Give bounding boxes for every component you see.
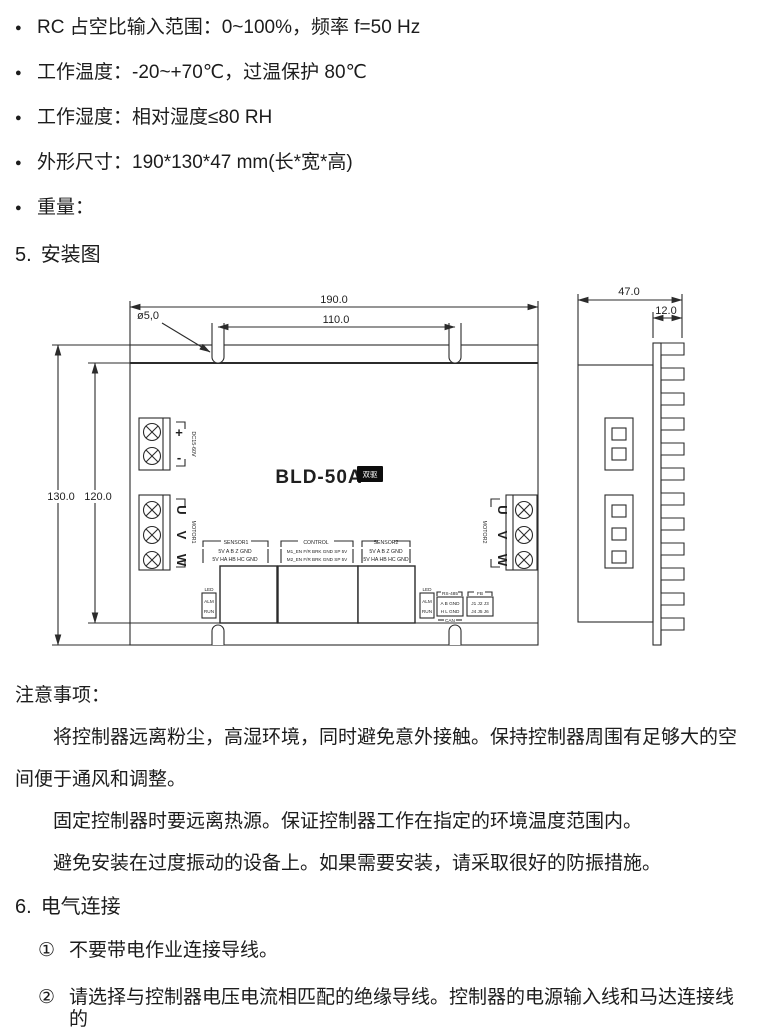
- fb-row1: J1 J2 J3: [471, 601, 489, 606]
- model-label: BLD-50A: [275, 467, 362, 488]
- motor1-u: U: [174, 505, 189, 514]
- front-view: 190.0 110.0 ø5,0 130.0 120.0: [42, 294, 538, 645]
- spec-text: 工作温度：-20~+70℃，过温保护 80℃: [37, 63, 367, 83]
- fb-title: FB: [477, 591, 483, 596]
- sensor2-connector: [358, 566, 415, 623]
- spec-item: ●工作湿度：相对湿度≤80 RH: [15, 108, 746, 128]
- document-page: ●RC 占空比输入范围：0~100%，频率 f=50 Hz ●工作温度：-20~…: [0, 0, 761, 1030]
- side-dimension-lines: 47.0 12.0: [578, 286, 682, 365]
- circled-number-icon: ②: [38, 987, 55, 1030]
- side-body: [578, 365, 653, 622]
- spec-text: 工作湿度：相对湿度≤80 RH: [37, 108, 272, 128]
- rs485-title: RS-485: [442, 591, 458, 596]
- sensor1-title: SENSOR1: [224, 540, 249, 546]
- motor1-v: V: [174, 531, 189, 540]
- mounting-slot: [449, 625, 461, 645]
- spec-item: ●RC 占空比输入范围：0~100%，频率 f=50 Hz: [15, 18, 746, 38]
- bullet-icon: ●: [15, 108, 37, 128]
- control-row1: M1_EN F/R BRK GND SP 5V: [287, 549, 348, 554]
- list-item: ① 不要带电作业连接导线。: [15, 940, 746, 962]
- led1-title: LED: [204, 587, 214, 592]
- notes-section: 注意事项： 将控制器远离粉尘，高湿环境，同时避免意外接触。保持控制器周围有足够大…: [15, 675, 746, 885]
- section-6-heading: 6. 电气连接: [15, 895, 746, 919]
- dim-slot-span: 110.0: [323, 314, 350, 326]
- side-view: 47.0 12.0: [578, 286, 684, 645]
- led2-title: LED: [422, 587, 432, 592]
- control-block: CONTROL M1_EN F/R BRK GND SP 5V M2_EN F/…: [278, 540, 358, 623]
- dim-depth: 47.0: [618, 286, 639, 298]
- list-item-text: 不要带电作业连接导线。: [69, 940, 278, 962]
- spec-list: ●RC 占空比输入范围：0~100%，频率 f=50 Hz ●工作温度：-20~…: [15, 18, 746, 218]
- led2-alm: ALM: [422, 599, 432, 604]
- note-paragraph: 固定控制器时要远离热源。保证控制器工作在指定的环境温度范围内。: [15, 801, 746, 843]
- spec-text: 重量：: [37, 198, 94, 218]
- section-title: 电气连接: [41, 895, 121, 919]
- control-connector: [278, 566, 358, 623]
- sensor1-row1: 5V A B Z GND: [218, 549, 251, 555]
- section-5-heading: 5. 安装图: [15, 243, 746, 267]
- mounting-slot: [212, 323, 224, 363]
- power-plus-label: +: [175, 425, 183, 440]
- sensor2-title: SENSOR2: [374, 540, 399, 546]
- power-minus-label: -: [177, 450, 181, 465]
- spec-text: RC 占空比输入范围：0~100%，频率 f=50 Hz: [37, 18, 420, 38]
- bullet-icon: ●: [15, 18, 37, 38]
- side-connector-bottom: [605, 495, 633, 568]
- rs485-row2: H L GND: [441, 609, 460, 614]
- installation-diagram: 190.0 110.0 ø5,0 130.0 120.0: [0, 270, 761, 670]
- can-label: CAN: [445, 618, 455, 623]
- section-title: 安装图: [41, 243, 101, 267]
- dim-fin-depth: 12.0: [655, 305, 676, 317]
- list-item: ② 请选择与控制器电压电流相匹配的绝缘导线。控制器的电源输入线和马达连接线的: [15, 987, 746, 1030]
- spec-item: ●工作温度：-20~+70℃，过温保护 80℃: [15, 63, 746, 83]
- motor2-w: W: [495, 554, 510, 567]
- motor1-label: MOTOR1: [190, 521, 196, 544]
- mounting-slot: [449, 323, 461, 363]
- led2-run: RUN: [422, 609, 432, 614]
- control-row2: M2_EN F/R BRK GND SP 5V: [287, 557, 348, 562]
- spec-item: ●重量：: [15, 198, 746, 218]
- spec-item: ●外形尺寸：190*130*47 mm(长*宽*高): [15, 153, 746, 173]
- fb-row2: J4 J5 J6: [471, 609, 489, 614]
- power-rating-label: DC15-60V: [190, 431, 196, 457]
- motor2-v: V: [495, 531, 510, 540]
- control-title: CONTROL: [303, 540, 328, 546]
- motor2-u: U: [495, 505, 510, 514]
- spec-text: 外形尺寸：190*130*47 mm(长*宽*高): [37, 153, 353, 173]
- rs485-row1: A B GND: [440, 601, 460, 606]
- dim-inner-height: 120.0: [84, 491, 112, 503]
- section-number: 5.: [15, 243, 32, 267]
- notes-title: 注意事项：: [15, 675, 746, 717]
- side-connector-top: [605, 418, 633, 470]
- dim-hole: ø5,0: [137, 310, 159, 322]
- led1-alm: ALM: [204, 599, 214, 604]
- mounting-plate: [653, 343, 661, 645]
- document-content: ●RC 占空比输入范围：0~100%，频率 f=50 Hz ●工作温度：-20~…: [0, 0, 761, 1030]
- bullet-icon: ●: [15, 63, 37, 83]
- heatsink-fins: [661, 343, 684, 645]
- circled-number-icon: ①: [38, 940, 55, 962]
- sensor1-row2: 5V HA HB HC GND: [212, 557, 258, 563]
- section-number: 6.: [15, 895, 32, 919]
- list-item-text: 请选择与控制器电压电流相匹配的绝缘导线。控制器的电源输入线和马达连接线的: [69, 987, 746, 1030]
- sensor2-row2: 5V HA HB HC GND: [363, 557, 409, 563]
- bullet-icon: ●: [15, 198, 37, 218]
- motor1-w: W: [174, 554, 189, 567]
- sensor1-connector: [220, 566, 277, 623]
- note-paragraph: 避免安装在过度振动的设备上。如果需要安装，请采取很好的防振措施。: [15, 843, 746, 885]
- bullet-icon: ●: [15, 153, 37, 173]
- note-paragraph: 将控制器远离粉尘，高湿环境，同时避免意外接触。保持控制器周围有足够大的空间便于通…: [15, 717, 746, 801]
- mounting-slot: [212, 625, 224, 645]
- electrical-connection-list: ① 不要带电作业连接导线。 ② 请选择与控制器电压电流相匹配的绝缘导线。控制器的…: [15, 940, 746, 1030]
- dim-height: 130.0: [47, 491, 75, 503]
- motor2-label: MOTOR2: [481, 521, 487, 544]
- brand-badge-text: 双驱: [363, 470, 378, 479]
- sensor2-row1: 5V A B Z GND: [369, 549, 402, 555]
- led1-run: RUN: [204, 609, 214, 614]
- dim-width: 190.0: [320, 294, 348, 306]
